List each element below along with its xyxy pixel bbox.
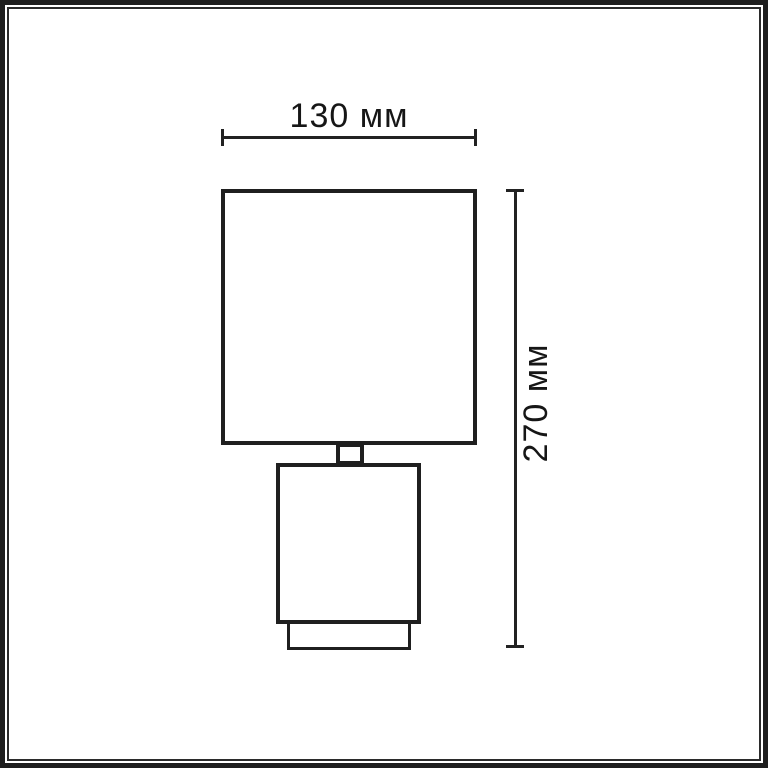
width-dimension-tick-right: [474, 129, 477, 146]
dimension-diagram-page: 130 мм 270 мм: [0, 0, 768, 768]
width-dimension-line: [222, 136, 476, 139]
lamp-body-outline: [276, 463, 421, 624]
width-dimension-label: 130 мм: [221, 98, 477, 134]
width-dimension-tick-left: [221, 129, 224, 146]
lamp-neck-outline: [336, 443, 364, 465]
height-dimension-tick-bottom: [506, 645, 524, 648]
lamp-shade-outline: [221, 189, 477, 445]
lamp-foot-outline: [287, 621, 411, 650]
height-dimension-label: 270 мм: [518, 344, 554, 463]
height-dimension-tick-top: [506, 189, 524, 192]
